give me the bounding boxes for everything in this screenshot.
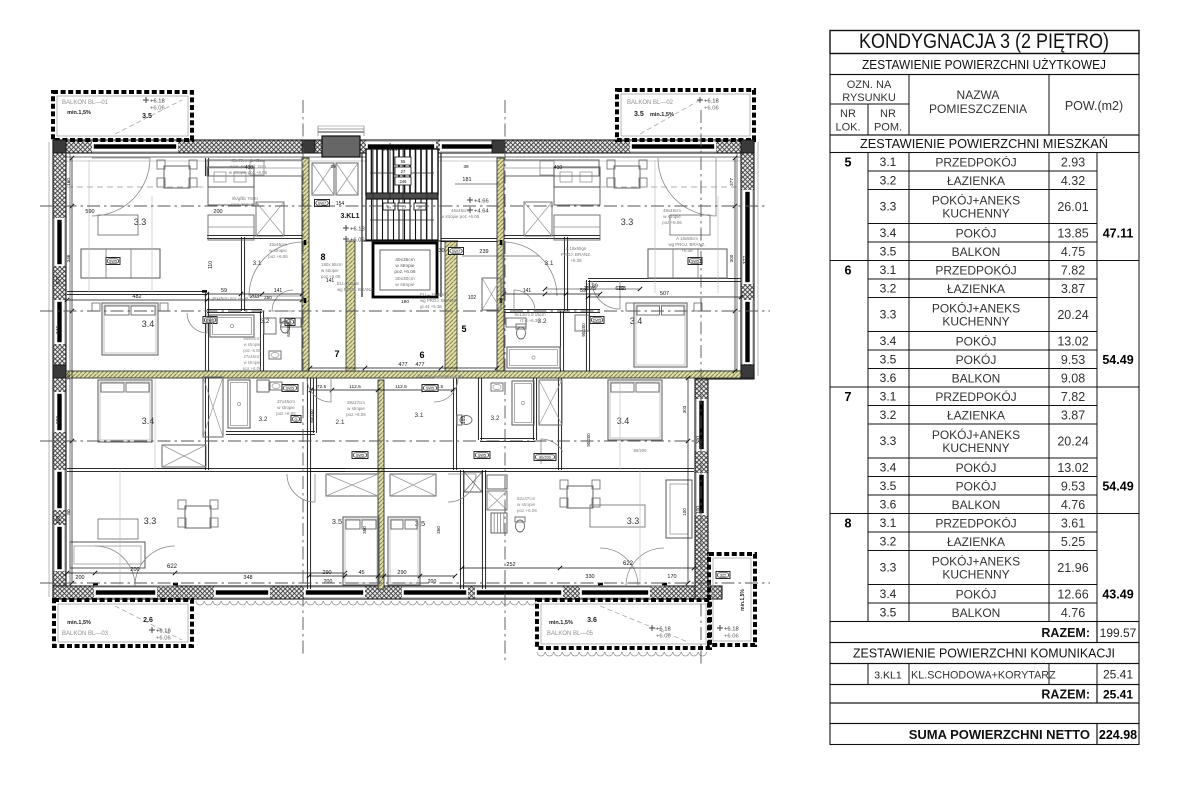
svg-text:BALKON BL—03: BALKON BL—03 (62, 631, 109, 637)
svg-text:346: 346 (66, 254, 71, 262)
svg-text:7.82: 7.82 (1061, 263, 1085, 277)
svg-text:KUCHENNY: KUCHENNY (942, 315, 1009, 329)
svg-text:3.4: 3.4 (142, 319, 155, 329)
svg-text:KUCHENNY: KUCHENNY (942, 207, 1009, 221)
svg-text:977: 977 (56, 276, 62, 285)
svg-text:45x45cm poz.+6.06: 45x45cm poz.+6.06 (212, 296, 249, 301)
svg-text:9.08: 9.08 (1061, 371, 1085, 385)
svg-text:380: 380 (66, 372, 71, 380)
svg-text:27: 27 (401, 169, 406, 174)
svg-text:SW5: SW5 (356, 454, 364, 458)
svg-text:54.49: 54.49 (1102, 479, 1133, 493)
svg-text:2.1: 2.1 (335, 419, 344, 426)
svg-text:w stropie: w stropie (395, 263, 415, 269)
svg-text:55: 55 (401, 159, 406, 164)
svg-text:w stropie: w stropie (244, 342, 261, 347)
svg-text:80: 80 (66, 509, 71, 515)
svg-text:wg PROJ. BRANZ.: wg PROJ. BRANZ. (668, 242, 705, 247)
svg-text:3.2: 3.2 (880, 173, 897, 187)
svg-text:3.4: 3.4 (880, 334, 897, 348)
svg-text:102: 102 (468, 295, 477, 301)
svg-text:290: 290 (397, 570, 406, 576)
svg-text:BALKON: BALKON (952, 371, 1001, 385)
svg-text:3.87: 3.87 (1061, 408, 1085, 422)
svg-text:KONDYGNACJA 3 (2 PIĘTRO): KONDYGNACJA 3 (2 PIĘTRO) (859, 30, 1109, 53)
svg-text:3.6: 3.6 (587, 617, 597, 624)
svg-text:poz.+6.06: poz.+6.06 (346, 412, 366, 417)
svg-text:3.3: 3.3 (880, 200, 897, 214)
svg-text:3.2: 3.2 (490, 415, 499, 422)
svg-text:48x45cm: 48x45cm (663, 208, 681, 213)
svg-text:9 x 16.4: 9 x 16.4 (383, 147, 399, 152)
svg-text:40x35cm: 40x35cm (395, 257, 414, 263)
svg-text:POW.(m2): POW.(m2) (1065, 99, 1123, 113)
svg-text:180: 180 (56, 516, 62, 525)
svg-text:poz.+6.06: poz.+6.06 (394, 269, 416, 275)
svg-text:4.32: 4.32 (1061, 174, 1085, 188)
svg-text:3.3: 3.3 (134, 217, 147, 227)
svg-text:3.5: 3.5 (880, 605, 897, 619)
svg-text:POMIESZCZENIA: POMIESZCZENIA (929, 102, 1027, 116)
svg-text:377: 377 (743, 256, 749, 265)
svg-text:3.2: 3.2 (880, 408, 897, 422)
svg-text:SW5: SW5 (286, 387, 294, 391)
svg-text:2.93: 2.93 (1061, 155, 1085, 169)
svg-text:KL.SCHODOWA+KORYTARZ: KL.SCHODOWA+KORYTARZ (911, 670, 1056, 682)
svg-text:477: 477 (415, 362, 424, 368)
svg-text:+4.66: +4.66 (474, 199, 489, 205)
svg-text:622: 622 (623, 561, 634, 567)
svg-text:PROJ. BRANZ.: PROJ. BRANZ. (561, 252, 591, 257)
svg-text:141: 141 (326, 278, 335, 284)
svg-text:3.1: 3.1 (252, 260, 261, 267)
svg-text:3.1: 3.1 (414, 412, 423, 419)
svg-text:+6.18: +6.18 (704, 99, 719, 105)
svg-text:min.1,5%: min.1,5% (549, 620, 573, 626)
svg-text:w stropie: w stropie (269, 248, 287, 253)
svg-text:wg PROJ. BRANZ.: wg PROJ. BRANZ. (420, 298, 457, 303)
svg-text:BALKON BL—01: BALKON BL—01 (62, 100, 109, 106)
svg-text:+6.06: +6.06 (704, 106, 719, 112)
svg-text:180: 180 (401, 299, 409, 305)
svg-text:SW7: SW7 (452, 250, 460, 254)
svg-text:4.76: 4.76 (1061, 498, 1085, 512)
svg-text:+6.38: +6.38 (681, 248, 693, 253)
svg-text:141: 141 (274, 288, 283, 294)
svg-text:3.4: 3.4 (880, 226, 897, 240)
svg-text:3.3: 3.3 (621, 217, 634, 227)
svg-text:200: 200 (428, 579, 437, 585)
svg-text:590: 590 (85, 209, 94, 215)
svg-text:PRZEDPOKÓJ: PRZEDPOKÓJ (935, 154, 1016, 169)
svg-text:3.4: 3.4 (880, 587, 897, 601)
svg-text:min.1,5%: min.1,5% (67, 620, 91, 626)
svg-text:3.KL1: 3.KL1 (874, 670, 902, 682)
svg-text:239: 239 (479, 249, 488, 255)
svg-text:3.5: 3.5 (880, 352, 897, 366)
svg-text:26.01: 26.01 (1057, 200, 1088, 214)
svg-text:200: 200 (324, 579, 333, 585)
svg-text:47.11: 47.11 (1103, 226, 1134, 240)
svg-text:100: 100 (696, 506, 702, 515)
svg-text:+6.18: +6.18 (150, 99, 165, 105)
svg-text:477: 477 (398, 362, 407, 368)
svg-text:13.85: 13.85 (1057, 226, 1088, 240)
svg-text:303: 303 (682, 405, 687, 413)
svg-text:3.2: 3.2 (880, 534, 897, 548)
svg-text:w stropie: w stropie (277, 405, 295, 410)
svg-text:+6.18: +6.18 (724, 627, 739, 633)
svg-text:RYSUNKU: RYSUNKU (842, 92, 896, 104)
svg-text:300: 300 (729, 254, 734, 262)
svg-text:350: 350 (436, 526, 441, 534)
svg-text:9.53: 9.53 (1061, 479, 1085, 493)
svg-text:+6.18: +6.18 (156, 629, 171, 635)
svg-text:45x45cm: 45x45cm (269, 242, 287, 247)
svg-text:20.24: 20.24 (1057, 308, 1088, 322)
svg-text:NR: NR (880, 108, 896, 120)
svg-text:EU= 18x58: EU= 18x58 (337, 281, 359, 286)
svg-text:RAZEM:: RAZEM: (1041, 688, 1090, 702)
svg-text:+6.38: +6.38 (570, 258, 582, 263)
svg-text:poz.+6.06: poz.+6.06 (662, 220, 682, 225)
svg-text:poz.+6.06: poz.+6.06 (276, 411, 296, 416)
svg-text:3.2: 3.2 (258, 416, 267, 423)
svg-text:G: G (295, 418, 298, 422)
svg-text:SW5: SW5 (109, 260, 117, 264)
svg-text:30x30cm: 30x30cm (395, 276, 414, 282)
svg-text:322: 322 (720, 574, 726, 578)
svg-text:w stropie: w stropie (321, 268, 339, 273)
svg-text:27x45cm: 27x45cm (277, 399, 295, 404)
svg-text:100: 100 (682, 508, 687, 516)
svg-text:21.96: 21.96 (1057, 561, 1088, 575)
svg-text:NAZWA: NAZWA (957, 88, 1000, 102)
svg-text:+6.18: +6.18 (350, 227, 365, 233)
svg-text:330: 330 (585, 574, 594, 580)
svg-text:PRZEDPOKÓJ: PRZEDPOKÓJ (935, 262, 1016, 277)
svg-text:3.KL1: 3.KL1 (340, 213, 359, 220)
svg-text:17: 17 (402, 205, 407, 210)
svg-text:3.6: 3.6 (880, 497, 897, 511)
svg-text:3.3: 3.3 (880, 308, 897, 322)
svg-text:110.5: 110.5 (584, 286, 596, 292)
svg-text:POKÓJ: POKÓJ (956, 478, 997, 493)
svg-text:39: 39 (330, 164, 336, 169)
svg-text:3.61: 3.61 (1061, 516, 1085, 530)
svg-text:224.98: 224.98 (1099, 728, 1137, 742)
svg-text:622: 622 (167, 564, 178, 570)
svg-text:EU = 19x58cm: EU = 19x58cm (420, 292, 449, 297)
svg-text:5: 5 (461, 324, 466, 334)
svg-text:7: 7 (845, 390, 852, 404)
svg-text:200: 200 (213, 209, 222, 215)
svg-text:20.24: 20.24 (1057, 435, 1088, 449)
svg-text:52x37cm: 52x37cm (517, 496, 536, 501)
svg-text:w stropie: w stropie (395, 282, 415, 288)
svg-text:199.57: 199.57 (1100, 626, 1137, 640)
svg-text:+6.06: +6.06 (156, 636, 171, 642)
svg-text:POKÓJ: POKÓJ (956, 333, 997, 348)
svg-text:POKÓJ: POKÓJ (956, 460, 997, 475)
svg-text:3.4: 3.4 (617, 416, 630, 426)
svg-text:3.5: 3.5 (634, 111, 644, 118)
svg-text:ZESTAWIENIE POWIERZCHNI UŻYTKO: ZESTAWIENIE POWIERZCHNI UŻYTKOWEJ (862, 58, 1106, 72)
svg-text:80/200: 80/200 (539, 456, 551, 460)
svg-text:346: 346 (56, 326, 62, 335)
svg-text:+6.06: +6.06 (724, 634, 739, 640)
svg-text:Ilk/gfilb 70cm: Ilk/gfilb 70cm (232, 196, 258, 201)
svg-text:+6.06: +6.06 (150, 106, 165, 112)
svg-text:ŁAZIENKA: ŁAZIENKA (947, 408, 1005, 422)
svg-text:350: 350 (362, 526, 367, 534)
svg-text:29x27cm: 29x27cm (347, 400, 365, 405)
svg-text:wg PROJ. BRANZ.: wg PROJ. BRANZ. (337, 287, 374, 292)
svg-text:7.82: 7.82 (1061, 390, 1085, 404)
svg-text:+6.18: +6.18 (656, 627, 671, 633)
svg-text:+6.06: +6.06 (350, 238, 365, 244)
svg-text:A 18x58cm: A 18x58cm (676, 236, 698, 241)
svg-text:3.6: 3.6 (880, 371, 897, 385)
svg-text:3.1: 3.1 (880, 263, 897, 277)
svg-text:290: 290 (322, 570, 331, 576)
svg-text:8: 8 (845, 517, 852, 531)
svg-text:poz.-6.06: poz.-6.06 (243, 348, 261, 353)
svg-text:POKÓJ: POKÓJ (956, 586, 997, 601)
svg-text:BALKON: BALKON (952, 498, 1001, 512)
svg-text:BALKON BL—05: BALKON BL—05 (547, 631, 594, 637)
svg-text:poz.+6.06: poz.+6.06 (243, 366, 262, 371)
svg-text:25.41: 25.41 (1103, 668, 1133, 682)
svg-text:PRZEDPOKÓJ: PRZEDPOKÓJ (935, 515, 1016, 530)
svg-text:3.3: 3.3 (880, 434, 897, 448)
svg-text:59: 59 (221, 288, 227, 294)
svg-text:45x45cm dr.45cm: 45x45cm dr.45cm (231, 158, 266, 163)
svg-text:DW5: DW5 (593, 319, 601, 323)
svg-text:min.1,5%: min.1,5% (67, 110, 91, 116)
svg-text:165: 165 (461, 416, 467, 425)
svg-text:PRZEDPOKÓJ: PRZEDPOKÓJ (935, 389, 1016, 404)
svg-text:3.3: 3.3 (880, 561, 897, 575)
svg-text:3.3: 3.3 (144, 516, 157, 526)
svg-text:A 18x65gn: A 18x65gn (566, 246, 587, 251)
svg-text:9x14cm 9 15cm: 9x14cm 9 15cm (515, 312, 546, 317)
svg-text:141: 141 (523, 288, 532, 294)
svg-text:rz.d.+6.38: rz.d.+6.38 (520, 318, 540, 323)
svg-text:4.76: 4.76 (1061, 606, 1085, 620)
svg-text:3.3: 3.3 (627, 516, 640, 526)
svg-text:SW5: SW5 (426, 387, 434, 391)
svg-text:54.49: 54.49 (1102, 353, 1133, 367)
svg-text:NR: NR (840, 108, 856, 120)
svg-text:27x45cm: 27x45cm (244, 354, 262, 359)
svg-text:250: 250 (264, 295, 272, 300)
svg-text:ZESTAWIENIE POWIERZCHNI KOMUNI: ZESTAWIENIE POWIERZCHNI KOMUNIKACJI (853, 647, 1115, 661)
svg-text:3.4: 3.4 (880, 460, 897, 474)
svg-text:7: 7 (334, 349, 339, 359)
svg-text:POKÓJ+ANEKS: POKÓJ+ANEKS (932, 193, 1020, 208)
svg-text:KUCHENNY: KUCHENNY (942, 441, 1009, 455)
svg-text:5: 5 (845, 156, 852, 170)
svg-text:w stropie poz.+6.06: w stropie poz.+6.06 (441, 214, 480, 219)
svg-text:2.6: 2.6 (143, 617, 153, 624)
svg-text:POKÓJ: POKÓJ (956, 352, 997, 367)
svg-text:180x 65cm: 180x 65cm (321, 262, 343, 267)
svg-text:BALKON BL—02: BALKON BL—02 (627, 100, 674, 106)
svg-text:szer. 8cm 2cm: szer. 8cm 2cm (231, 202, 260, 207)
svg-text:9.53: 9.53 (1061, 353, 1085, 367)
svg-text:BALKON: BALKON (952, 606, 1001, 620)
svg-text:170: 170 (667, 574, 676, 580)
svg-text:3.1: 3.1 (880, 516, 897, 530)
svg-text:8: 8 (320, 252, 325, 262)
svg-text:poz.+6.06: poz.+6.06 (517, 508, 537, 513)
svg-text:min.1,5%: min.1,5% (740, 589, 746, 611)
svg-text:200: 200 (130, 567, 139, 573)
svg-text:+6.06: +6.06 (656, 634, 671, 640)
svg-text:SW5: SW5 (691, 260, 699, 264)
svg-text:ZESTAWIENIE POWIERZCHNI MIESZK: ZESTAWIENIE POWIERZCHNI MIESZKAŃ (860, 136, 1108, 151)
svg-text:8x: 8x (387, 205, 391, 210)
svg-text:110: 110 (208, 261, 214, 269)
svg-text:3.5: 3.5 (880, 244, 897, 258)
svg-text:410: 410 (554, 165, 563, 171)
svg-text:160: 160 (66, 178, 71, 186)
svg-text:377: 377 (729, 178, 734, 186)
svg-text:72.5: 72.5 (317, 384, 327, 390)
svg-text:w stropie: w stropie (517, 502, 536, 507)
svg-text:12.66: 12.66 (1057, 587, 1088, 601)
svg-text:SW5: SW5 (478, 454, 486, 458)
svg-text:181: 181 (462, 177, 471, 183)
svg-text:3.5: 3.5 (332, 517, 342, 526)
svg-text:3.1: 3.1 (880, 155, 897, 169)
svg-text:w stropie: w stropie (347, 406, 365, 411)
svg-text:poz.+6.06: poz.+6.06 (268, 254, 288, 259)
svg-text:246: 246 (400, 179, 408, 184)
svg-text:348: 348 (243, 575, 252, 581)
svg-text:200: 200 (75, 575, 84, 581)
svg-text:SW7: SW7 (318, 202, 326, 206)
svg-text:RAZEM:: RAZEM: (1041, 626, 1090, 640)
svg-text:gl.44 +6.36: gl.44 +6.36 (420, 304, 442, 309)
svg-text:BALKON: BALKON (952, 245, 1001, 259)
svg-text:30: 30 (418, 205, 423, 210)
svg-text:w stropie: w stropie (663, 214, 681, 219)
svg-text:SUMA POWIERZCHNI NETTO: SUMA POWIERZCHNI NETTO (909, 727, 1090, 742)
svg-text:3.2: 3.2 (260, 318, 269, 325)
svg-text:3.5: 3.5 (880, 479, 897, 493)
svg-text:min.1,5%: min.1,5% (650, 112, 674, 118)
svg-text:39: 39 (463, 164, 469, 169)
svg-text:3.2: 3.2 (880, 281, 897, 295)
svg-text:112.5: 112.5 (395, 384, 407, 390)
svg-text:LOK.: LOK. (835, 122, 860, 134)
svg-text:6: 6 (845, 264, 852, 278)
svg-text:3.1: 3.1 (544, 260, 553, 267)
svg-text:3.5: 3.5 (142, 113, 152, 120)
svg-text:622: 622 (615, 286, 624, 292)
svg-text:80/200: 80/200 (634, 448, 647, 453)
svg-text:ŁAZIENKA: ŁAZIENKA (947, 535, 1005, 549)
svg-text:POKÓJ+ANEKS: POKÓJ+ANEKS (932, 427, 1020, 442)
svg-text:300: 300 (696, 436, 702, 445)
svg-text:43.49: 43.49 (1102, 587, 1133, 601)
svg-text:POKÓJ+ANEKS: POKÓJ+ANEKS (932, 301, 1020, 316)
svg-text:w stropie poz.+6.06: w stropie poz.+6.06 (229, 170, 268, 175)
svg-text:POKÓJ: POKÓJ (956, 225, 997, 240)
svg-text:ŁAZIENKA: ŁAZIENKA (947, 282, 1005, 296)
svg-text:4.75: 4.75 (1061, 245, 1085, 259)
svg-text:POM.: POM. (874, 122, 902, 134)
svg-text:90/200: 90/200 (581, 323, 586, 337)
svg-text:507: 507 (660, 291, 669, 297)
svg-text:OZN. NA: OZN. NA (847, 79, 892, 91)
svg-text:3.87: 3.87 (1061, 282, 1085, 296)
svg-text:203: 203 (250, 294, 259, 300)
svg-text:252: 252 (506, 562, 515, 568)
svg-text:13.02: 13.02 (1057, 334, 1088, 348)
svg-text:6: 6 (419, 350, 424, 360)
svg-text:3.1: 3.1 (880, 389, 897, 403)
svg-text:ŁAZIENKA: ŁAZIENKA (947, 174, 1005, 188)
svg-text:60/200: 60/200 (309, 409, 314, 423)
svg-text:45: 45 (358, 570, 364, 576)
svg-text:60/200: 60/200 (286, 323, 291, 337)
svg-text:13.02: 13.02 (1057, 461, 1088, 475)
svg-text:25.41: 25.41 (1103, 688, 1133, 702)
svg-text:90/200: 90/200 (586, 433, 591, 447)
svg-text:230: 230 (435, 248, 444, 254)
svg-text:4/4 50m w stropie +6.06: 4/4 50m w stropie +6.06 (418, 374, 463, 379)
svg-text:5.25: 5.25 (1061, 535, 1085, 549)
svg-text:300: 300 (56, 416, 62, 425)
svg-text:KUCHENNY: KUCHENNY (942, 568, 1009, 582)
svg-text:482: 482 (132, 294, 141, 300)
svg-text:wen. pom. gl. 2cm: wen. pom. gl. 2cm (230, 164, 266, 169)
svg-text:46x45cm: 46x45cm (451, 208, 469, 213)
svg-text:w stropie: w stropie (244, 360, 261, 365)
svg-text:POKÓJ+ANEKS: POKÓJ+ANEKS (932, 554, 1020, 569)
svg-text:112.5: 112.5 (349, 384, 361, 390)
